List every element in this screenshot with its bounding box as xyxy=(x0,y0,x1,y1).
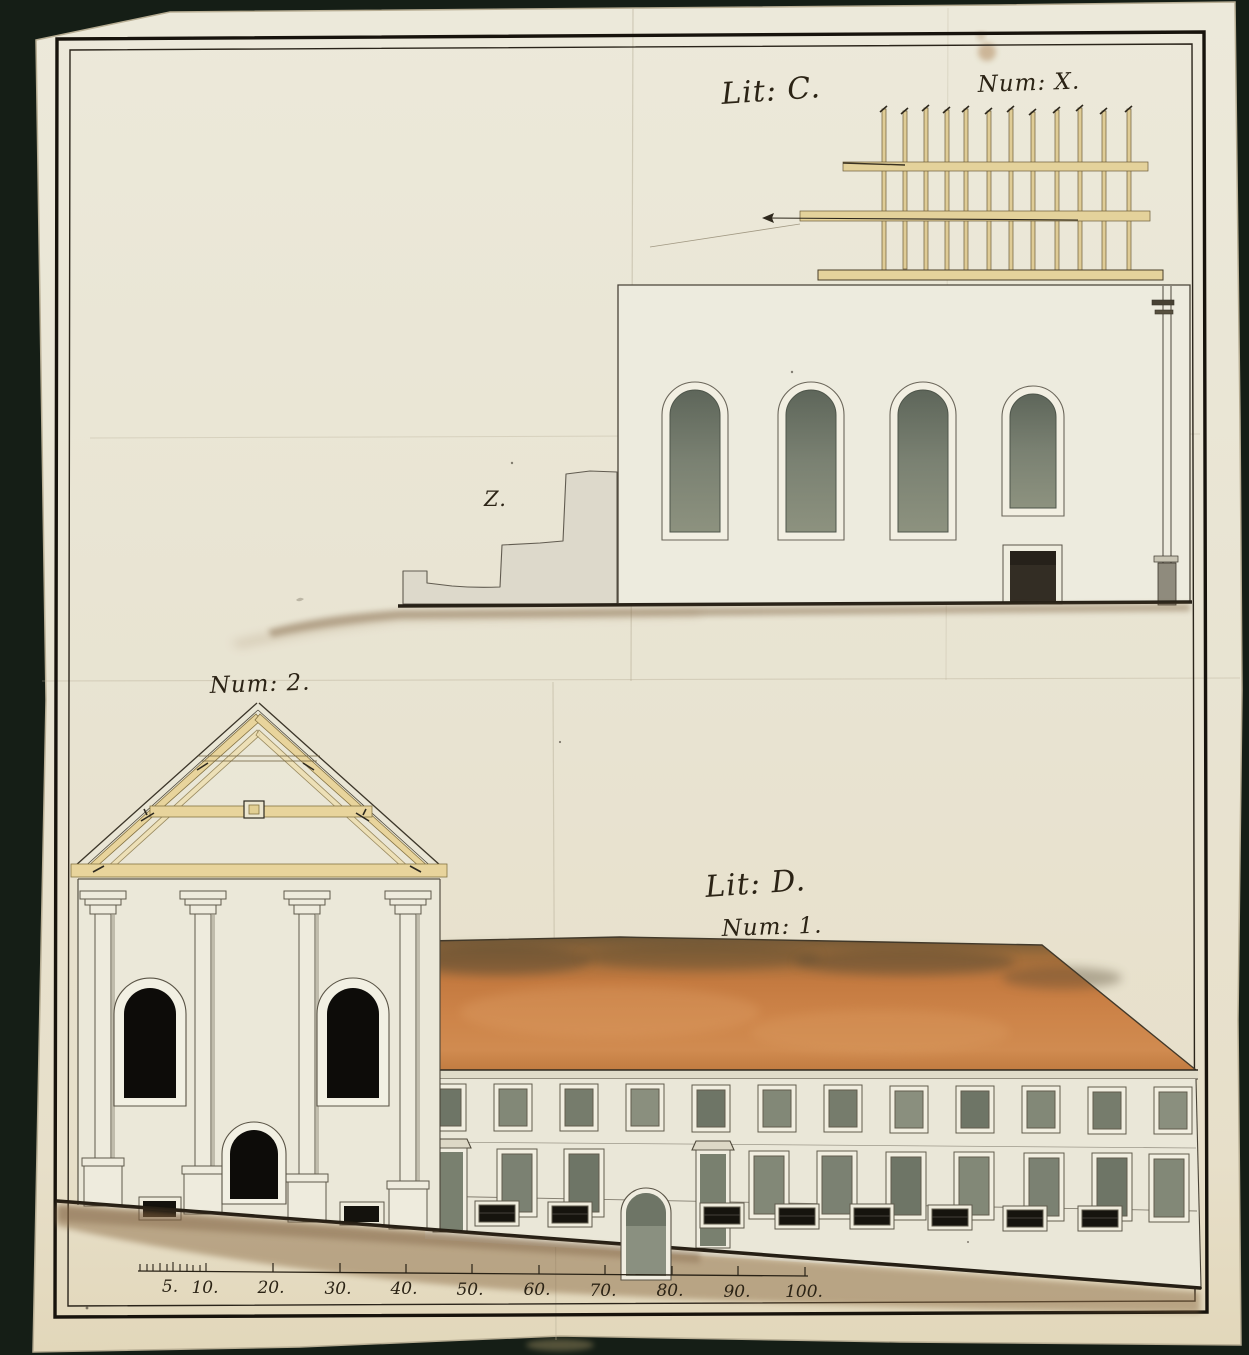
doorway xyxy=(1003,545,1062,604)
scale-label: 5. xyxy=(162,1277,178,1297)
upper-window xyxy=(560,1084,598,1131)
entrance-door-center xyxy=(692,1141,734,1248)
building-lit-d xyxy=(410,937,1201,1287)
facade-arched-window xyxy=(114,978,186,1106)
facade-portal xyxy=(222,1122,286,1204)
basement-window xyxy=(928,1205,972,1230)
scaffold-base-beam xyxy=(818,270,1163,280)
scaffold-pole xyxy=(882,109,886,271)
cornice xyxy=(424,1070,1198,1079)
upper-window xyxy=(494,1084,532,1131)
arched-window xyxy=(1002,386,1064,516)
scale-label: 80. xyxy=(656,1281,683,1301)
upper-window xyxy=(1088,1087,1126,1134)
scaffold-pole xyxy=(987,111,991,270)
roof-smudge xyxy=(795,949,1015,975)
roof-highlight xyxy=(750,1010,1010,1054)
arched-entrance xyxy=(621,1188,671,1280)
capital-molding xyxy=(1155,310,1173,314)
label-lit-c: Lit: C. xyxy=(719,70,822,112)
basement-window xyxy=(850,1204,894,1229)
scale-label: 70. xyxy=(589,1281,616,1301)
scaffold-pole xyxy=(924,108,928,272)
base-molding xyxy=(1154,556,1178,562)
scaffold-pole xyxy=(1127,109,1131,272)
label-num-1: Num: 1. xyxy=(720,912,823,942)
scale-label: 100. xyxy=(785,1282,823,1302)
stain xyxy=(526,1339,594,1351)
scale-label: 40. xyxy=(389,1279,417,1299)
scaffold-pole xyxy=(1078,108,1082,272)
upper-window xyxy=(692,1085,730,1132)
scale-label: 90. xyxy=(723,1282,750,1302)
scaffold-pole xyxy=(1009,109,1013,272)
scaffold-pole xyxy=(964,109,968,272)
upper-window xyxy=(890,1086,928,1133)
middle-window xyxy=(1149,1154,1189,1222)
roof-smudge xyxy=(1002,967,1122,989)
upper-window xyxy=(758,1085,796,1132)
scaffold-pole xyxy=(1031,112,1035,270)
basement-window xyxy=(1003,1206,1047,1231)
label-z: Z. xyxy=(483,487,507,511)
basement-window xyxy=(700,1203,744,1228)
roof-smudge xyxy=(580,944,820,970)
scaffold-pole xyxy=(945,110,949,270)
king-post-core xyxy=(249,805,259,814)
scale-label: 60. xyxy=(523,1280,550,1300)
arched-window xyxy=(778,382,844,540)
label-num-x: Num: X. xyxy=(976,68,1080,98)
scale-label: 10. xyxy=(191,1278,218,1298)
basement-window-row xyxy=(475,1201,1122,1231)
basement-window xyxy=(548,1202,592,1227)
facade-arched-window xyxy=(317,978,389,1106)
scaffold-rail-upper xyxy=(843,162,1148,171)
upper-window xyxy=(1022,1086,1060,1133)
eaves-tie-beam xyxy=(71,864,447,877)
scale-label: 30. xyxy=(324,1279,351,1299)
base-block xyxy=(1158,563,1176,605)
upper-window xyxy=(956,1086,994,1133)
scale-label: 50. xyxy=(456,1280,483,1300)
arched-window xyxy=(890,382,956,540)
upper-window xyxy=(1154,1087,1192,1134)
building-lit-c xyxy=(618,285,1190,605)
basement-window xyxy=(475,1201,519,1226)
architectural-drawing-sheet: Lit: C. Num: X. Z. xyxy=(0,0,1249,1355)
upper-window xyxy=(626,1084,664,1131)
basement-window xyxy=(1078,1206,1122,1231)
arched-window xyxy=(662,382,728,540)
scale-label: 20. xyxy=(256,1278,284,1298)
label-lit-d: Lit: D. xyxy=(703,863,807,905)
scaffold-pole xyxy=(903,111,907,269)
basement-window xyxy=(775,1204,819,1229)
scaffold-pole xyxy=(1055,110,1059,272)
scaffold-pole xyxy=(1102,111,1106,271)
capital-molding xyxy=(1152,300,1174,305)
roof-highlight xyxy=(460,986,760,1038)
label-num-2: Num: 2. xyxy=(208,669,311,699)
door-lintel xyxy=(692,1141,734,1150)
upper-window xyxy=(824,1085,862,1132)
